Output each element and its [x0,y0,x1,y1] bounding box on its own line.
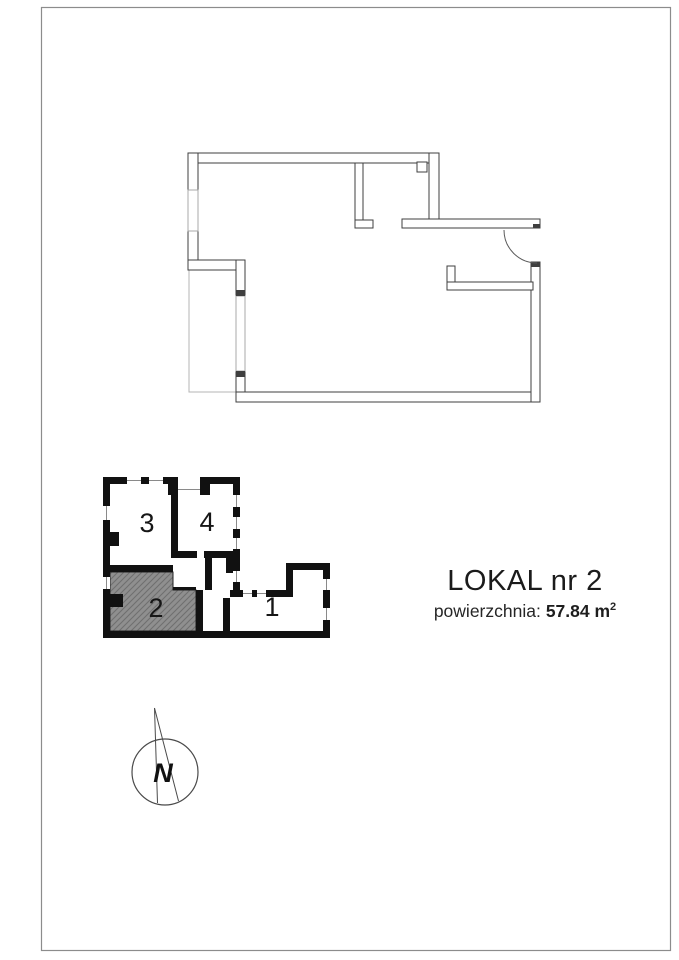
wall-segment [103,631,330,638]
area-line: powierzchnia:57.84 m2 [400,601,650,622]
north-needle [155,708,179,803]
key-plan: 3 4 2 1 [103,477,330,638]
unit-title: LOKAL nr 2 [400,566,650,598]
wall-segment [226,558,233,573]
area-exponent: 2 [610,601,616,613]
door-jamb [533,224,540,228]
wall-corridor [402,219,540,228]
window-jamb [236,290,245,296]
window-left-upper [188,190,198,231]
area-value: 57.84 m [546,601,610,621]
wall-top [188,153,439,163]
area-label: powierzchnia: [434,601,541,621]
wall-segment [196,590,203,638]
wall-segment [168,477,178,495]
north-label: N [153,758,173,788]
wall-right-upper [429,153,439,228]
wall-interior-horizontal [447,282,533,290]
title-block: LOKAL nr 2 powierzchnia:57.84 m2 [400,566,650,622]
wall-segment [171,551,197,558]
unit-label-4: 4 [199,507,214,537]
wall-segment [103,477,110,638]
north-arrow: N [132,708,198,805]
wall-partition [355,163,363,220]
wall-segment [204,551,233,558]
unit-label-2: 2 [148,593,163,623]
main-floor-plan [188,153,540,402]
entrance-door-arc [504,230,537,263]
wall-segment [103,565,173,572]
plan-sheet-page: 3 4 2 1 N LOKAL nr 2 powierzchnia:57.84 … [0,0,679,960]
duct-shaft [417,162,427,172]
window-jamb [236,371,245,377]
window-left-lower [236,296,245,371]
wall-bottom [236,392,540,402]
wall-segment [205,558,212,590]
wall-segment [103,594,123,607]
wall-segment [173,587,196,590]
wall-segment [323,563,330,638]
wall-segment [103,532,119,546]
architectural-drawing: 3 4 2 1 N [0,0,679,960]
unit-label-3: 3 [139,508,154,538]
unit-label-1: 1 [264,592,279,622]
main-plan-jambs [236,224,540,377]
wall-partition-foot [355,220,373,228]
wall-segment [171,495,178,557]
terrace-outline [189,270,237,392]
